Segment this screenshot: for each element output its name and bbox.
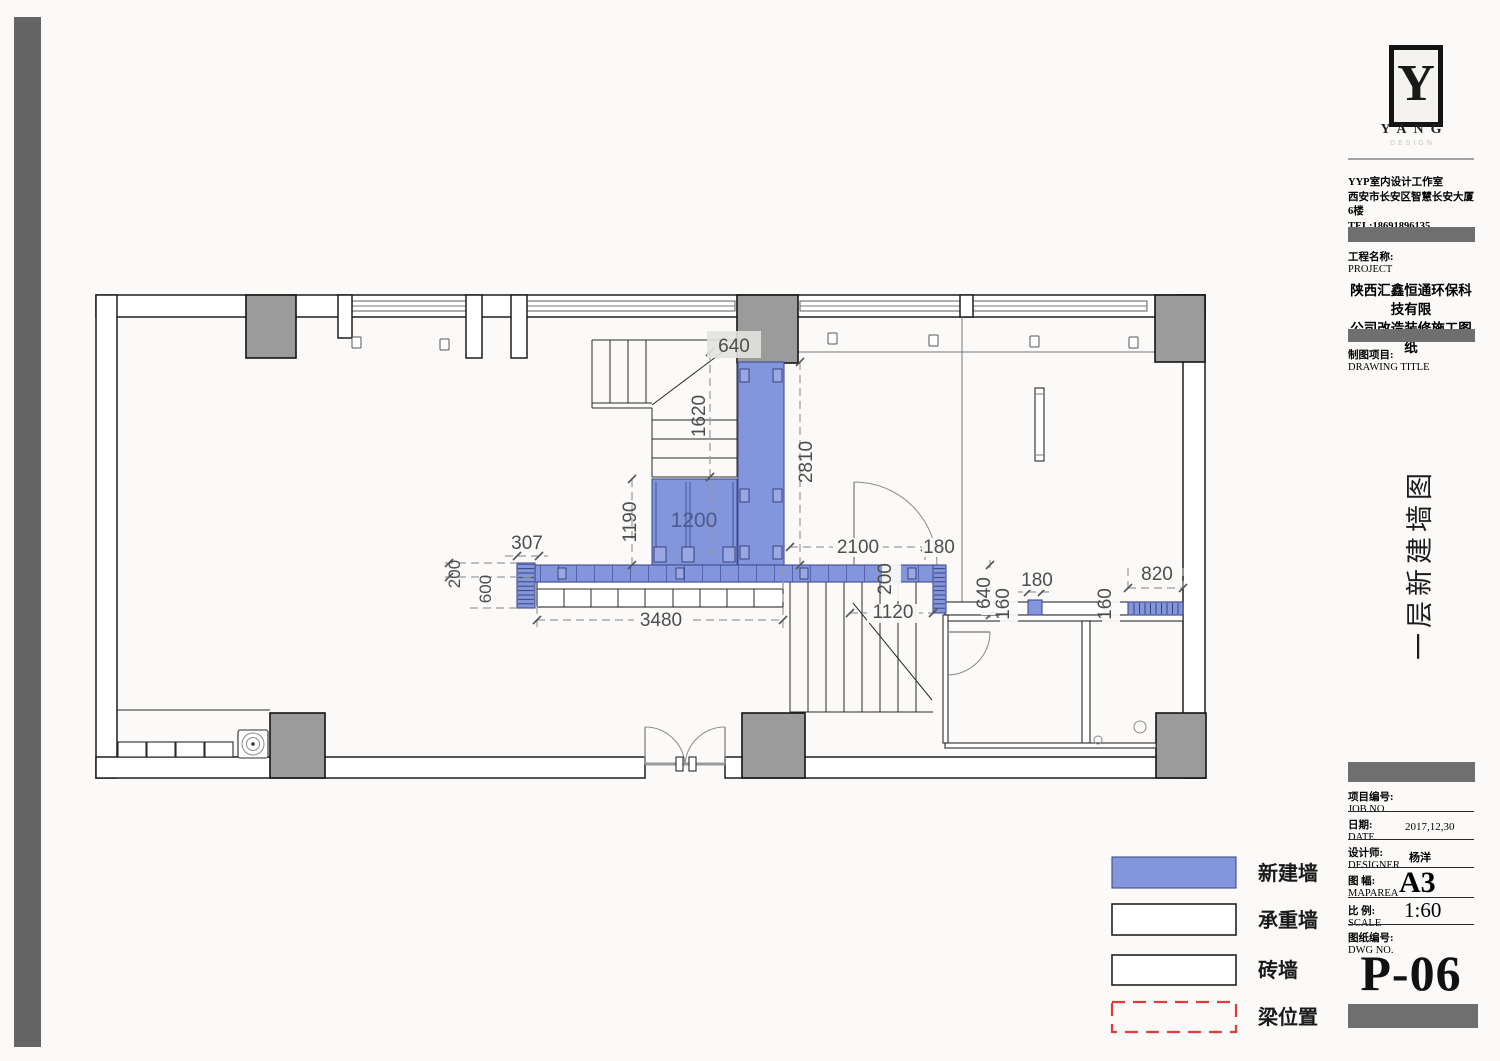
field-designer-value: 杨洋	[1409, 849, 1431, 865]
studio-info: YYP室内设计工作室 西安市长安区智慧长安大厦6楼 TEL:1869189613…	[1348, 176, 1478, 234]
field-scale-value: 1:60	[1404, 898, 1441, 923]
logo-subtitle: DESIGN	[1348, 140, 1474, 147]
field-date-value: 2017,12,30	[1405, 821, 1455, 833]
legend-swatch-brick-wall	[1112, 955, 1236, 985]
logo-name: YANG	[1348, 122, 1474, 138]
legend-swatch-load-bearing-wall	[1112, 904, 1236, 935]
divider-bar	[1348, 329, 1475, 342]
dim-200-left: 200	[445, 560, 464, 588]
door-double-entrance	[645, 727, 725, 771]
sheet-number: P-06	[1348, 944, 1474, 1002]
titleblock-rule	[1348, 158, 1474, 160]
dim-2100: 2100	[837, 537, 879, 558]
dim-820: 820	[1141, 564, 1173, 585]
dim-640-column: 640	[718, 336, 750, 357]
dim-1190: 1190	[620, 502, 641, 543]
dim-160-b: 160	[1095, 588, 1116, 620]
divider-bar	[1348, 1004, 1478, 1028]
dim-307: 307	[511, 533, 543, 554]
field-divider	[1348, 811, 1474, 812]
field-divider	[1348, 839, 1474, 840]
legend-swatch-new-wall	[1112, 857, 1236, 888]
drawing-title-label: 制图项目: DRAWING TITLE	[1348, 347, 1474, 373]
dim-3480: 3480	[640, 610, 682, 631]
project-name: 陕西汇鑫恒通环保科技有限 公司改造装修施工图纸	[1345, 281, 1477, 357]
dim-1620: 1620	[689, 395, 710, 437]
floor-plan-drawing: 640 1620 2810 1190 1200 307 200 600 2100…	[0, 0, 1500, 1061]
legend: 新建墙 承重墙 砖墙 梁位置	[1112, 857, 1318, 1032]
legend-label-brick-wall: 砖墙	[1258, 958, 1298, 982]
dim-2810: 2810	[796, 441, 817, 483]
dim-180-door: 180	[923, 537, 955, 558]
field-maparea-value: A3	[1399, 866, 1436, 900]
project-name-line1: 陕西汇鑫恒通环保科技有限	[1345, 281, 1477, 319]
field-job-no-cn: 项目编号:	[1348, 789, 1474, 804]
legend-label-load-bearing-wall: 承重墙	[1258, 908, 1318, 932]
drawing-title-label-cn: 制图项目:	[1348, 347, 1474, 362]
dim-600: 600	[476, 575, 495, 603]
legend-label-new-wall: 新建墙	[1258, 861, 1318, 885]
dim-180-b: 180	[1021, 570, 1053, 591]
project-label: 工程名称: PROJECT	[1348, 249, 1474, 275]
drawing-title-vertical: 一层新建墙图	[1398, 468, 1437, 660]
interior-window	[1035, 388, 1044, 461]
dim-200-band: 200	[875, 563, 896, 595]
studio-logo: Y	[1389, 45, 1443, 127]
legend-label-beam-position: 梁位置	[1257, 1005, 1318, 1029]
field-job-no-en: JOB NO.	[1348, 804, 1474, 815]
counter-under-band	[537, 582, 783, 607]
field-dwg-no-cn: 图纸编号:	[1348, 930, 1474, 945]
door-room	[947, 632, 990, 675]
studio-name: YYP室内设计工作室	[1348, 176, 1478, 191]
legend-swatch-beam-position	[1112, 1002, 1236, 1032]
studio-address: 西安市长安区智慧长安大厦6楼	[1348, 191, 1478, 220]
divider-bar	[1348, 227, 1475, 242]
field-date-en: DATE	[1348, 832, 1474, 843]
rooms-bottom-right	[943, 602, 1183, 748]
counter-bottom-left	[117, 710, 270, 758]
project-label-en: PROJECT	[1348, 264, 1474, 275]
dim-160-a: 160	[993, 588, 1014, 620]
dim-640-stair: 640	[974, 577, 995, 609]
divider-bar	[1348, 762, 1475, 782]
outer-walls	[96, 295, 1205, 778]
logo-mark: Y	[1397, 58, 1435, 110]
dim-1120: 1120	[873, 602, 914, 623]
field-divider	[1348, 924, 1474, 925]
new-walls	[517, 362, 1183, 615]
dim-1200: 1200	[671, 509, 718, 532]
stairs-upper	[592, 340, 737, 477]
drawing-title-label-en: DRAWING TITLE	[1348, 362, 1474, 373]
project-label-cn: 工程名称:	[1348, 249, 1474, 264]
